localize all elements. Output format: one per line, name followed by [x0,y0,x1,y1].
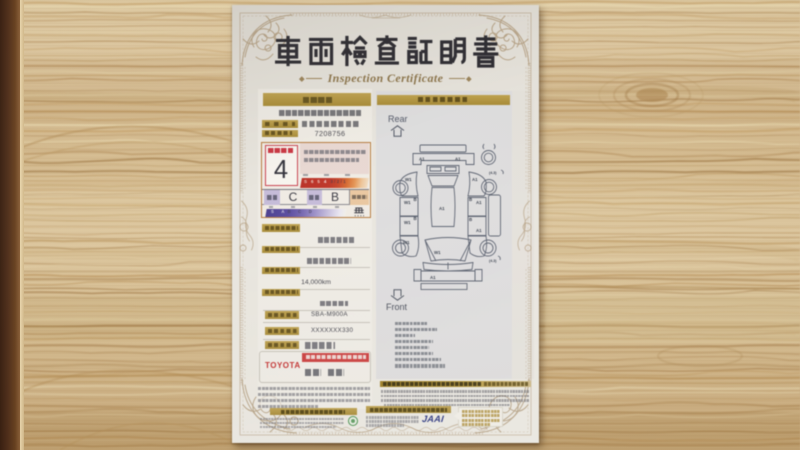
svg-text:A1: A1 [476,200,482,205]
svg-text:A1: A1 [439,206,445,211]
svg-text:A1: A1 [476,228,482,233]
svg-text:B: B [414,216,417,221]
svg-text:(4.3): (4.3) [489,171,497,175]
svg-text:A1: A1 [472,177,478,182]
svg-text:A1: A1 [430,275,436,280]
svg-text:B: B [414,197,417,202]
svg-text:W1: W1 [434,250,441,255]
svg-text:B: B [469,197,472,202]
svg-text:W1: W1 [403,240,410,245]
svg-text:B: B [469,217,472,222]
svg-text:A1: A1 [419,156,425,161]
svg-text:A1: A1 [455,156,461,161]
svg-text:W1: W1 [404,220,411,225]
svg-text:(4.3): (4.3) [489,259,497,263]
svg-text:W1: W1 [405,177,412,182]
svg-text:W1: W1 [404,200,411,205]
